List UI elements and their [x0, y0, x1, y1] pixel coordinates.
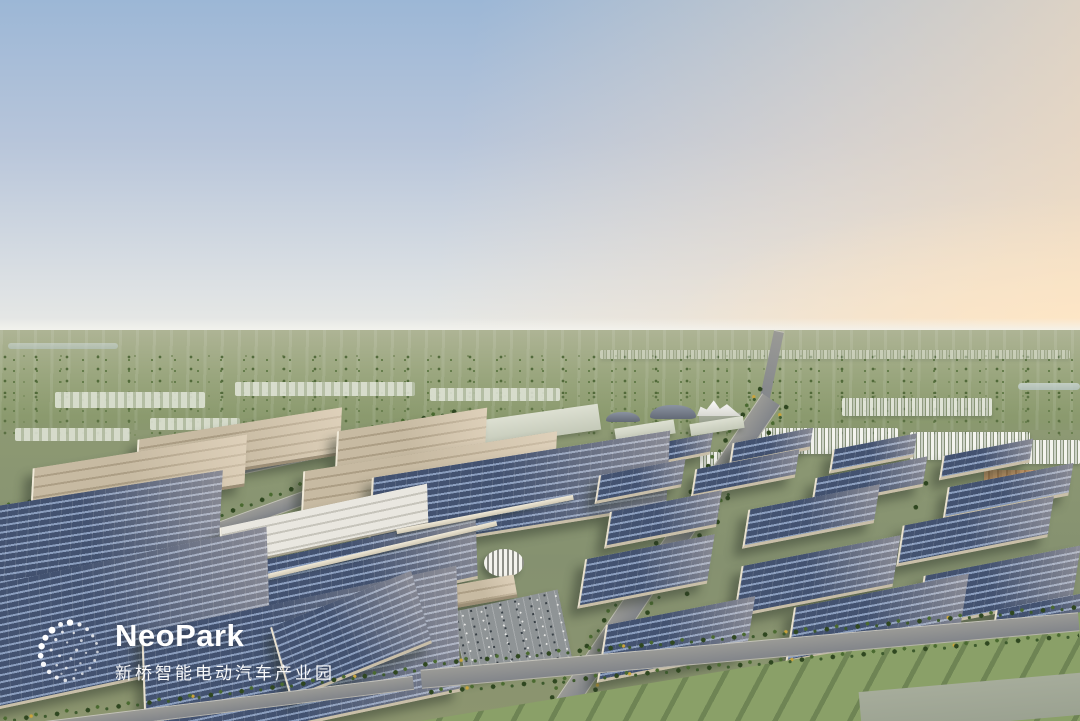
neopark-aerial-rendering: NeoPark 新桥智能电动汽车产业园: [0, 0, 1080, 721]
greenhouse-cluster: [430, 388, 560, 401]
greenhouse-cluster: [55, 392, 205, 408]
greenhouse-cluster: [235, 382, 415, 396]
greenhouse-cluster: [15, 428, 130, 441]
logo-wordmark: NeoPark: [115, 618, 335, 654]
sunset-glow: [0, 0, 1080, 336]
striped-dome-building: [484, 549, 524, 577]
distant-pond-2: [8, 343, 118, 349]
residential-towers: [842, 398, 992, 416]
logo-subtitle: 新桥智能电动汽车产业园: [115, 659, 335, 684]
logo-text: NeoPark 新桥智能电动汽车产业园: [115, 618, 335, 684]
horizon-city: [600, 350, 1070, 359]
arena-hall: [650, 405, 696, 419]
dotted-globe-icon: [34, 611, 106, 691]
neopark-logo: NeoPark 新桥智能电动汽车产业园: [34, 608, 335, 694]
distant-pond: [1018, 383, 1080, 390]
arena-hall-2: [606, 412, 640, 422]
